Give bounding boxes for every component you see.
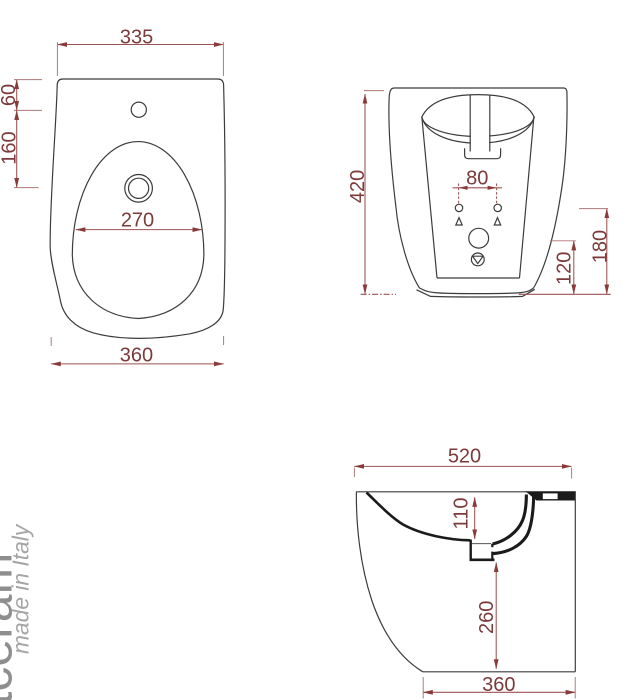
svg-text:520: 520: [448, 446, 481, 468]
svg-text:260: 260: [476, 601, 498, 634]
svg-text:360: 360: [120, 344, 153, 366]
svg-text:270: 270: [121, 210, 154, 232]
svg-text:160: 160: [0, 131, 21, 164]
svg-text:420: 420: [347, 170, 369, 203]
svg-text:80: 80: [466, 167, 488, 189]
svg-text:110: 110: [451, 498, 473, 530]
svg-text:120: 120: [554, 252, 576, 285]
svg-text:335: 335: [120, 26, 153, 48]
svg-text:180: 180: [590, 230, 612, 263]
svg-text:made in Italy: made in Italy: [8, 523, 34, 654]
